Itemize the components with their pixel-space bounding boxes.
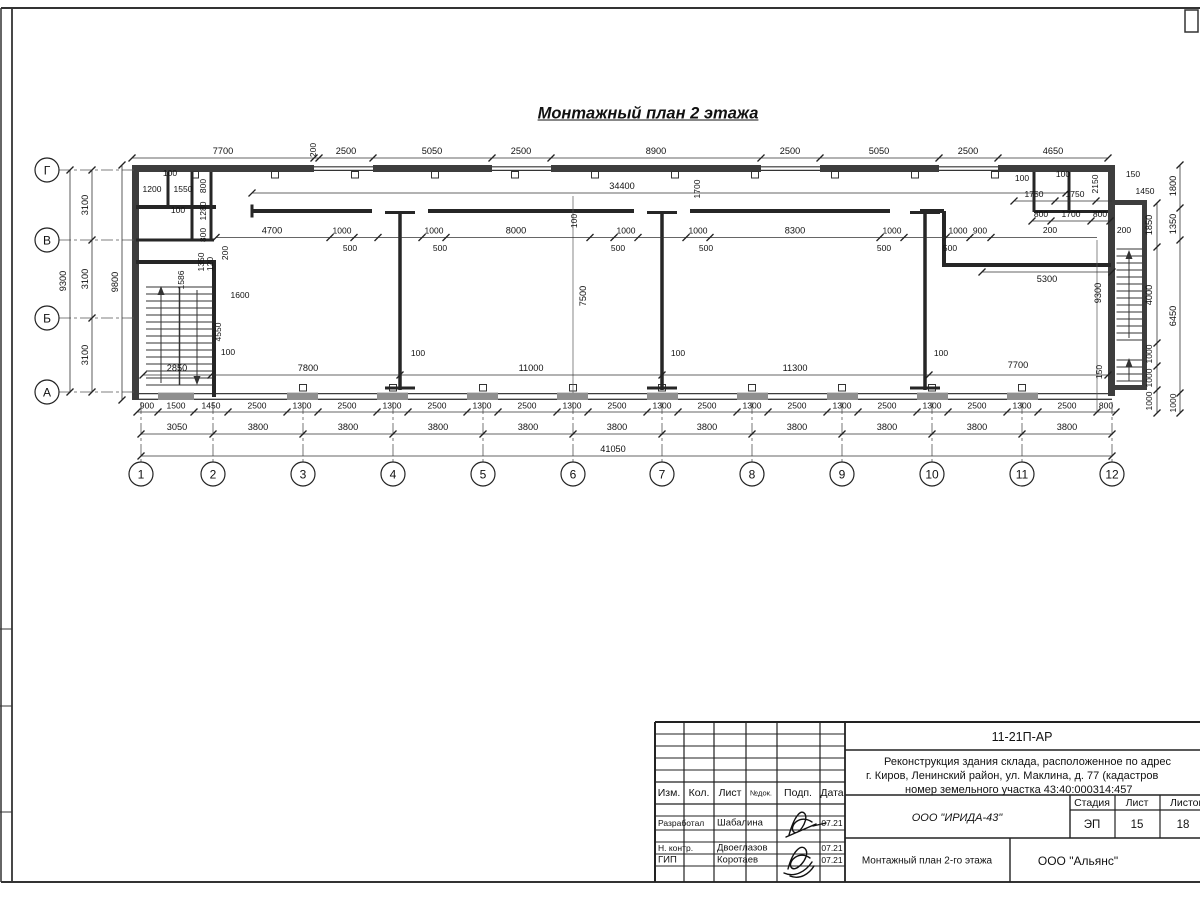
dim-label: 100 [163, 168, 177, 178]
row3-name: Коротаев [717, 855, 758, 866]
dim-label: 2500 [788, 401, 807, 411]
aux-dim-lines [573, 196, 1097, 412]
dim-label: 900 [140, 401, 154, 411]
dim-label: 1300 [1013, 401, 1032, 411]
row3-role: ГИП [658, 855, 677, 866]
axis-label: В [43, 234, 51, 248]
dim-label: 2500 [511, 146, 531, 156]
dim-label: 1000 [883, 226, 902, 236]
axis-label: Б [43, 312, 51, 326]
project-name-line2: г. Киров, Ленинский район, ул. Маклина, … [866, 770, 1158, 782]
dim-label: 200 [308, 143, 318, 157]
dim-label: 1200 [143, 184, 162, 194]
dim-label: 800 [1099, 401, 1113, 411]
stage-header: Стадия [1074, 797, 1110, 809]
sheet-value: 15 [1131, 819, 1144, 831]
dim-label: 150 [1126, 169, 1140, 179]
axis-label: 1 [138, 468, 145, 482]
dim-label: 2850 [167, 363, 187, 373]
dim-label: 5300 [1037, 274, 1057, 284]
dim-label: 1000 [1144, 391, 1154, 410]
dim-label: 3800 [338, 422, 358, 432]
dim-label: 2500 [878, 401, 897, 411]
dim-label: 3800 [877, 422, 897, 432]
dim-label: 1300 [653, 401, 672, 411]
doc-code: 11-21П-АР [992, 730, 1053, 744]
dim-label: 100 [671, 348, 685, 358]
dim-label: 2500 [336, 146, 356, 156]
dim-label: 34400 [609, 181, 635, 191]
dim-label: 2500 [1058, 401, 1077, 411]
dim-label: 3800 [248, 422, 268, 432]
axis-lines [59, 170, 1112, 462]
dim-label: 2500 [780, 146, 800, 156]
dim-label: 1450 [1136, 186, 1155, 196]
col-kol: Кол. [689, 787, 710, 799]
project-name-line3: номер земельного участка 43:40:000314:45… [905, 784, 1133, 796]
dim-label: 4000 [1144, 285, 1154, 305]
dim-label: 11300 [783, 363, 808, 373]
col-list: Лист [719, 787, 742, 799]
design-org: ООО "ИРИДА-43" [912, 812, 1003, 824]
dim-label: 200 [1043, 225, 1057, 235]
dim-label: 1000 [617, 226, 636, 236]
dim-label: 3800 [967, 422, 987, 432]
dim-label: 1000 [1144, 368, 1154, 387]
dim-label: 500 [943, 243, 957, 253]
dim-label: 150 [1094, 365, 1104, 379]
axis-label: 12 [1105, 468, 1119, 482]
dim-label: 1280 [198, 201, 208, 220]
dim-label: 200 [220, 246, 230, 260]
axis-label: А [43, 386, 51, 400]
col-izm: Изм. [658, 787, 681, 799]
dim-label: 100 [221, 347, 235, 357]
axis-label: 3 [300, 468, 307, 482]
dim-label: 1300 [743, 401, 762, 411]
sheets-value: 18 [1177, 819, 1190, 831]
dim-label: 100 [569, 214, 579, 228]
dim-label: 900 [973, 226, 987, 236]
dim-label: 7700 [213, 146, 233, 156]
dim-label: 800 [198, 228, 208, 242]
dim-label: 120 [205, 257, 215, 271]
dim-label: 9300 [58, 271, 68, 291]
dim-label: 500 [343, 243, 357, 253]
axis-label: 6 [570, 468, 577, 482]
drawing-sheet: 7700250050502500890025005050250046502009… [0, 0, 1200, 900]
dim-label: 1850 [1144, 215, 1154, 235]
dim-label: 7500 [578, 286, 588, 306]
dim-label: 3800 [697, 422, 717, 432]
dim-label: 1000 [949, 226, 968, 236]
dim-label: 1586 [176, 270, 186, 289]
dim-label: 1000 [1168, 393, 1178, 412]
dim-label: 8000 [506, 226, 526, 236]
dim-label: 2500 [338, 401, 357, 411]
dim-label: 4650 [1043, 146, 1063, 156]
dim-label: 1350 [1168, 214, 1178, 234]
dim-label: 5050 [869, 146, 889, 156]
dim-label: 2500 [518, 401, 537, 411]
axis-label: 4 [390, 468, 397, 482]
dim-label: 1700 [1062, 209, 1081, 219]
dim-label: 2150 [1090, 174, 1100, 193]
col-ndoc: №док. [750, 789, 772, 798]
dim-label: 2500 [608, 401, 627, 411]
row1-date: 07.21 [821, 818, 842, 828]
dim-label: 3800 [428, 422, 448, 432]
dim-label: 1000 [1144, 344, 1154, 363]
dim-label: 2500 [428, 401, 447, 411]
dim-label: 7700 [1008, 360, 1028, 370]
dim-label: 1000 [425, 226, 444, 236]
axis-label: 9 [839, 468, 846, 482]
col-podp: Подп. [784, 787, 812, 799]
axis-label: Г [44, 164, 51, 178]
row2-name: Двоеглазов [717, 843, 768, 854]
interior-walls [136, 172, 1111, 397]
dim-label: 1750 [1025, 189, 1044, 199]
dim-label: 1300 [563, 401, 582, 411]
dim-label: 41050 [600, 444, 626, 454]
dim-label: 3100 [80, 195, 90, 215]
axis-label: 11 [1016, 468, 1029, 482]
dim-label: 7800 [298, 363, 318, 373]
dim-label: 1450 [202, 401, 221, 411]
sheet-header: Лист [1126, 797, 1149, 809]
stage-value: ЭП [1084, 819, 1101, 831]
wall-pilasters [192, 172, 1026, 392]
dim-label: 1300 [473, 401, 492, 411]
dim-label: 11000 [519, 363, 544, 373]
dim-label: 3100 [80, 345, 90, 365]
dim-label: 3050 [167, 422, 187, 432]
dim-label: 3800 [518, 422, 538, 432]
dim-label: 500 [611, 243, 625, 253]
stairs-right [1117, 249, 1143, 381]
exterior-walls [132, 165, 1147, 400]
dim-label: 1550 [174, 184, 193, 194]
dim-label: 2500 [698, 401, 717, 411]
dim-label: 1300 [383, 401, 402, 411]
dim-label: 1600 [231, 290, 250, 300]
dim-label: 3800 [787, 422, 807, 432]
axis-label: 2 [210, 468, 217, 482]
row2-date: 07.21 [821, 843, 842, 853]
dim-label: 9800 [110, 272, 120, 292]
customer-org: ООО "Альянс" [1038, 854, 1118, 868]
dim-label: 5050 [422, 146, 442, 156]
dim-label: 4550 [213, 322, 223, 341]
sheets-header: Листов [1170, 797, 1200, 809]
dim-label: 1000 [689, 226, 708, 236]
dim-label: 1750 [1066, 189, 1085, 199]
dim-label: 1700 [692, 179, 702, 198]
row2-role: Н. контр. [658, 843, 693, 853]
axis-label: 8 [749, 468, 756, 482]
dim-label: 4700 [262, 226, 282, 236]
dim-label: 6450 [1168, 306, 1178, 326]
row3-date: 07.21 [821, 855, 842, 865]
dim-label: 100 [1056, 169, 1070, 179]
dim-label: 1500 [167, 401, 186, 411]
dim-label: 200 [1117, 225, 1131, 235]
dim-label: 3100 [80, 269, 90, 289]
dim-label: 3800 [607, 422, 627, 432]
axis-label: 7 [659, 468, 666, 482]
dim-label: 1000 [333, 226, 352, 236]
dim-label: 2500 [968, 401, 987, 411]
dim-label: 1300 [293, 401, 312, 411]
dim-label: 1800 [1168, 176, 1178, 196]
axis-label: 5 [480, 468, 487, 482]
dim-label: 9300 [1093, 283, 1103, 303]
col-data: Дата [820, 787, 843, 799]
dim-label: 8300 [785, 226, 805, 236]
row1-role: Разработал [658, 818, 704, 828]
dim-label: 3800 [1057, 422, 1077, 432]
axis-label: 10 [925, 468, 939, 482]
dim-label: 8900 [646, 146, 666, 156]
dim-label: 800 [198, 179, 208, 193]
dim-label: 100 [411, 348, 425, 358]
dim-label: 800 [1093, 209, 1107, 219]
dim-label: 100 [171, 205, 185, 215]
dim-label: 100 [934, 348, 948, 358]
dim-label: 2500 [248, 401, 267, 411]
row1-name: Шабалина [717, 818, 763, 829]
dim-label: 500 [433, 243, 447, 253]
dim-label: 100 [1015, 173, 1029, 183]
dim-label: 1300 [833, 401, 852, 411]
dim-label: 500 [877, 243, 891, 253]
dim-label: 2500 [958, 146, 978, 156]
dim-label: 500 [699, 243, 713, 253]
dim-label: 1300 [923, 401, 942, 411]
drawing-name: Монтажный план 2-го этажа [862, 856, 992, 867]
project-name-line1: Реконструкция здания склада, расположенн… [884, 756, 1171, 768]
dim-label: 800 [1034, 209, 1048, 219]
page-title: Монтажный план 2 этажа [538, 105, 759, 124]
